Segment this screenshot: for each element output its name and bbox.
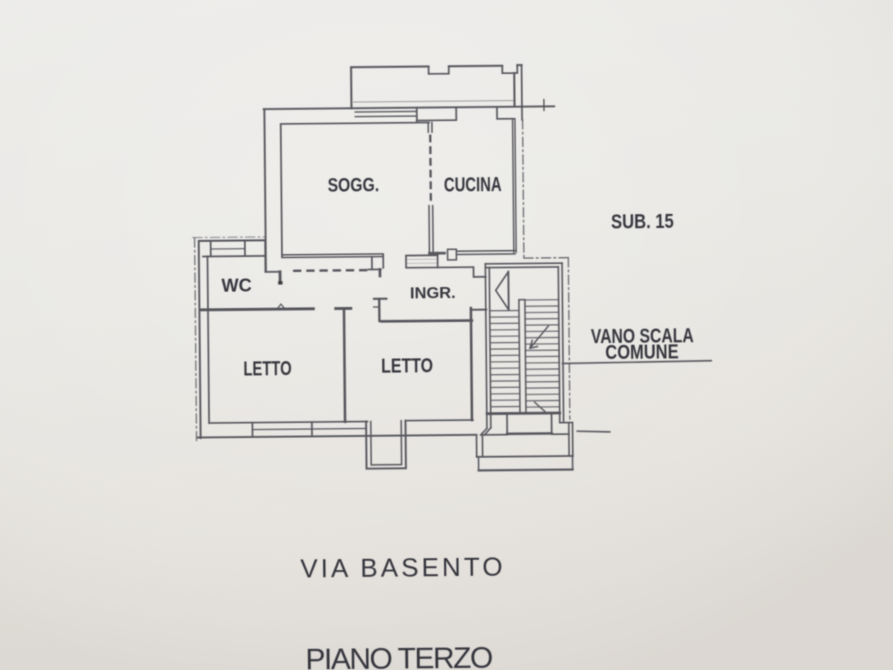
svg-text:SUB. 15: SUB. 15 (611, 211, 674, 234)
svg-text:LETTO: LETTO (381, 355, 433, 377)
svg-text:COMUNE: COMUNE (605, 341, 679, 364)
svg-text:INGR.: INGR. (410, 285, 456, 302)
svg-text:SOGG.: SOGG. (328, 175, 380, 196)
svg-text:CUCINA: CUCINA (444, 174, 502, 197)
svg-text:LETTO: LETTO (243, 358, 292, 380)
svg-text:VIA BASENTO: VIA BASENTO (300, 551, 503, 583)
svg-text:PIANO TERZO: PIANO TERZO (305, 642, 493, 670)
svg-text:WC: WC (221, 275, 251, 295)
